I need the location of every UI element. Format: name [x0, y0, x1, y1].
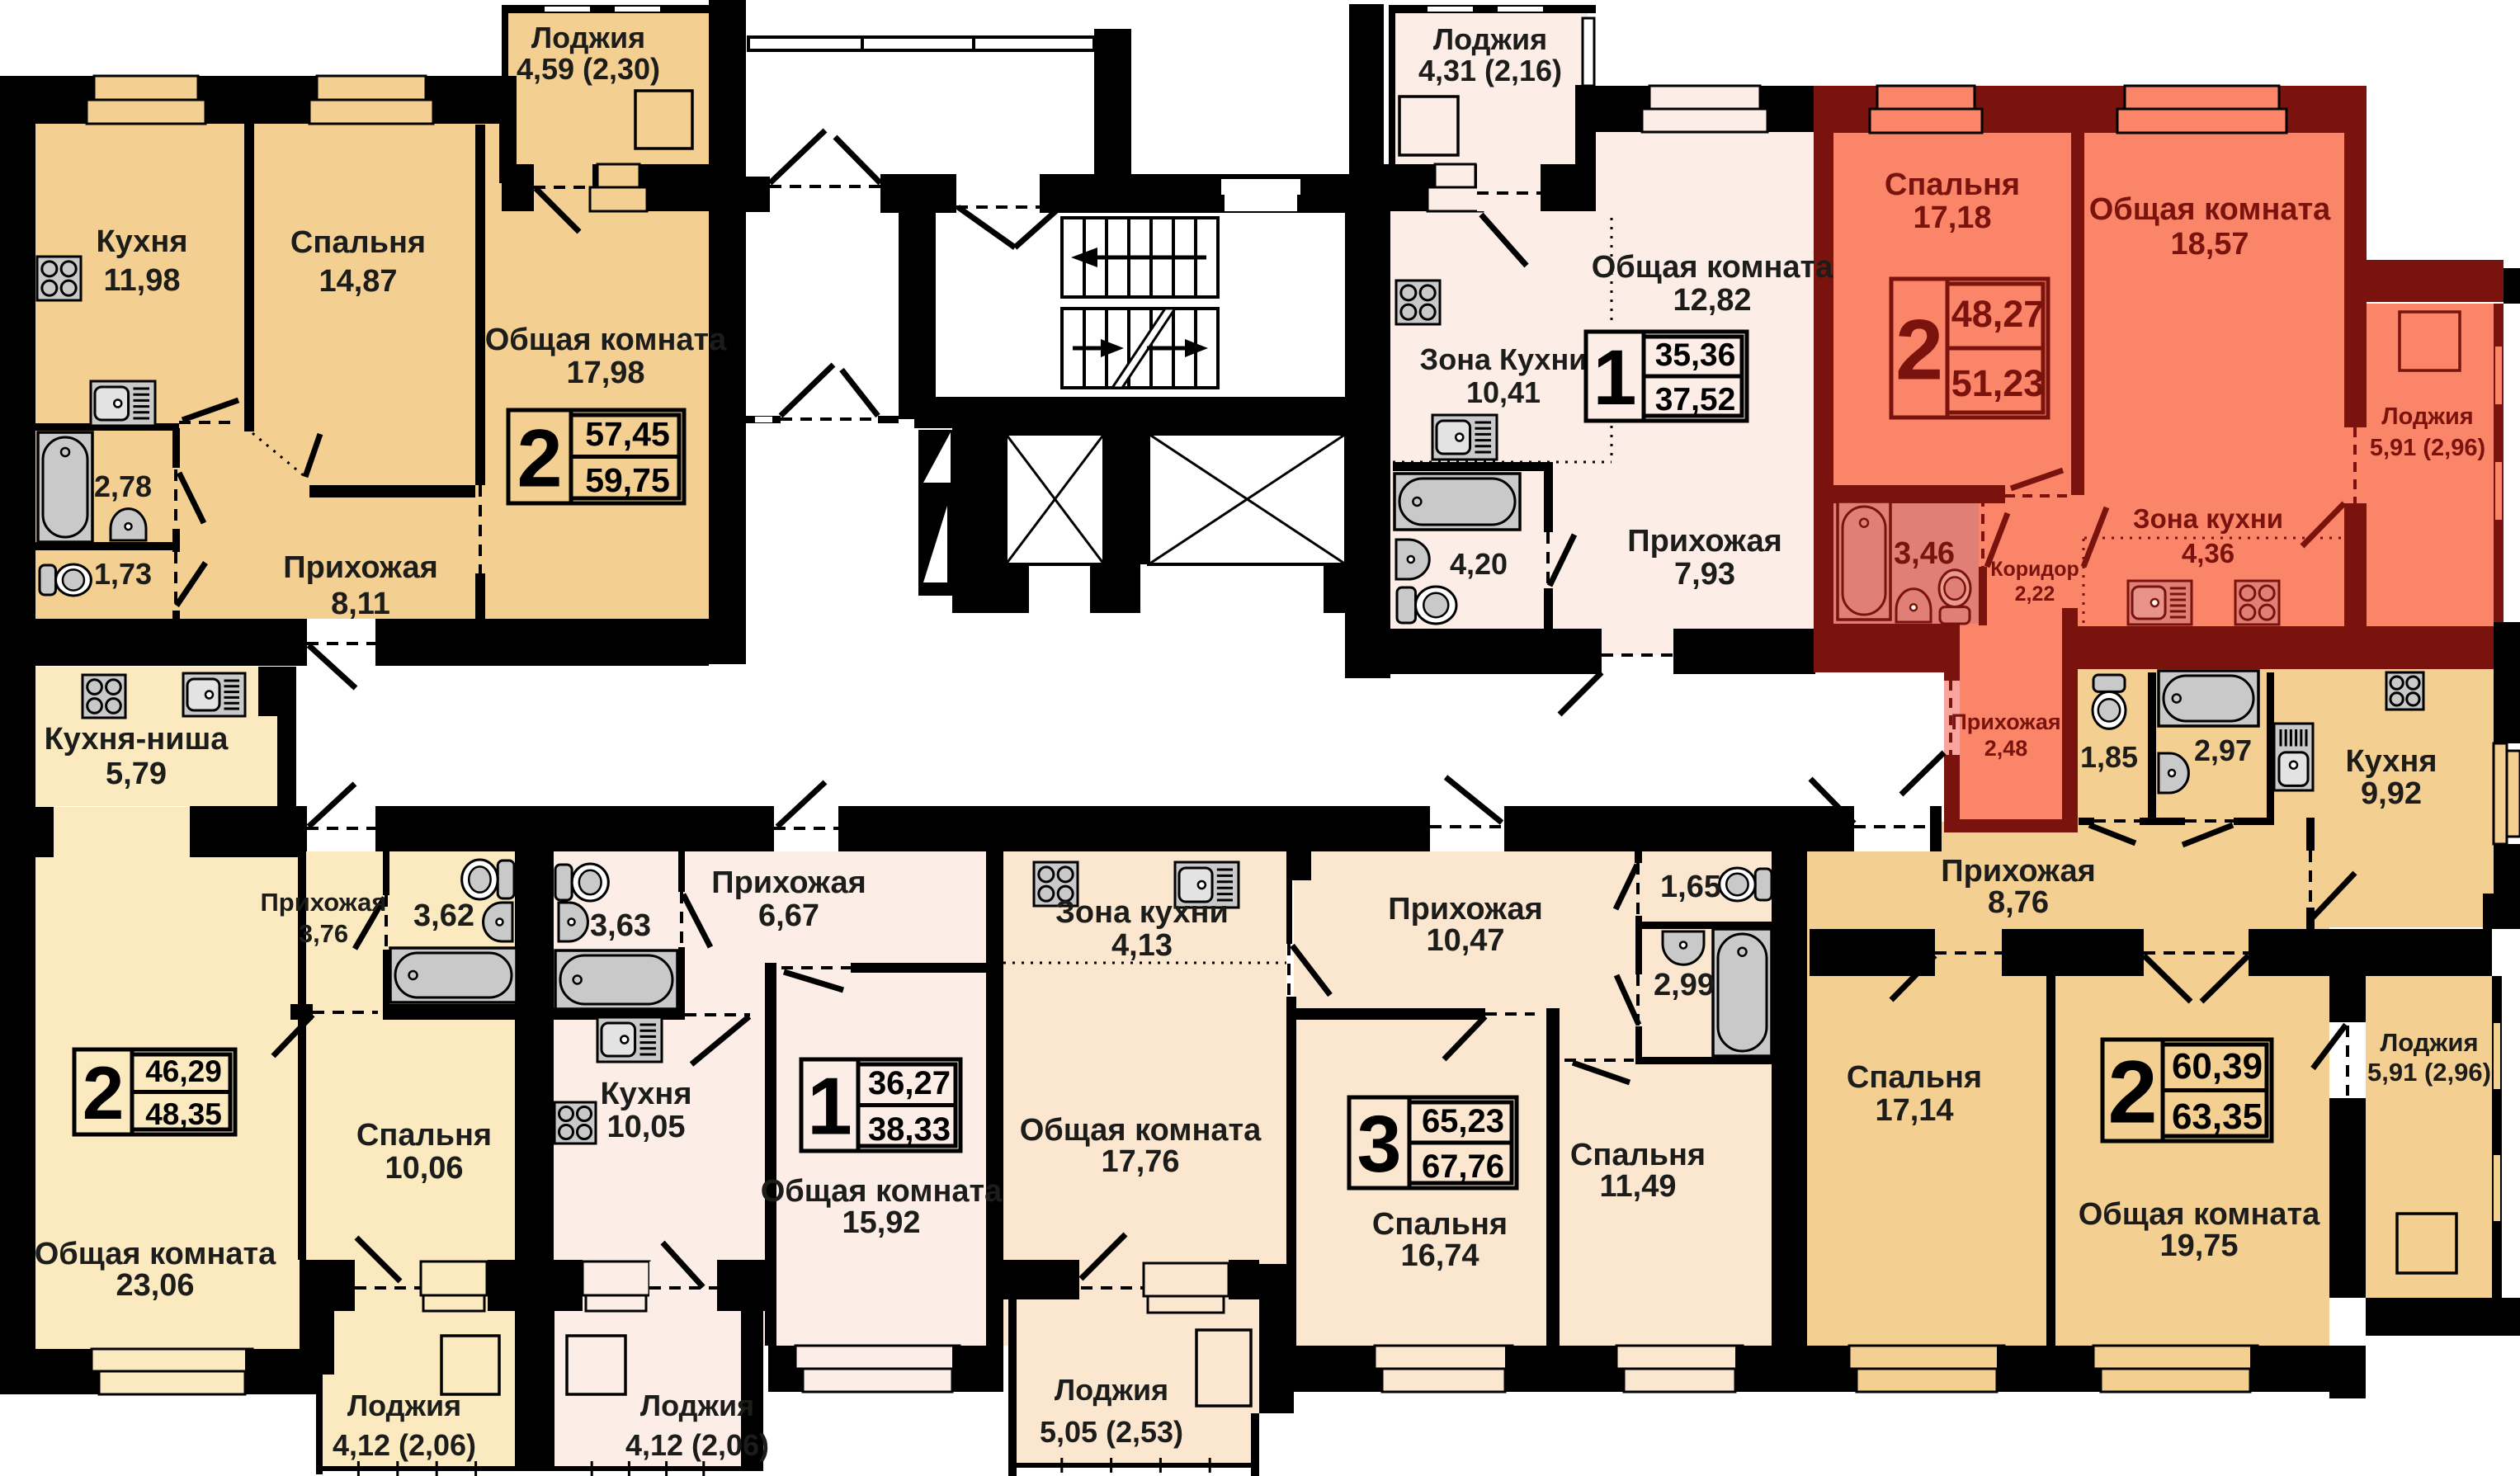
svg-text:1,65: 1,65 [1660, 870, 1721, 904]
svg-text:48,35: 48,35 [145, 1097, 222, 1131]
svg-text:4,20: 4,20 [1450, 547, 1508, 581]
svg-text:Спальня: Спальня [1372, 1207, 1508, 1242]
svg-text:Прихожая: Прихожая [711, 865, 866, 900]
svg-text:Лоджия: Лоджия [2380, 1028, 2478, 1057]
svg-text:4,12 (2,06): 4,12 (2,06) [333, 1428, 476, 1462]
svg-text:Кухня: Кухня [96, 224, 187, 259]
svg-text:65,23: 65,23 [1422, 1103, 1504, 1139]
svg-text:8,76: 8,76 [1988, 885, 2049, 920]
svg-text:5,91 (2,96): 5,91 (2,96) [2370, 435, 2485, 461]
svg-text:23,06: 23,06 [116, 1268, 194, 1303]
svg-text:46,29: 46,29 [145, 1054, 222, 1088]
svg-text:3: 3 [1357, 1099, 1402, 1189]
svg-text:Зона кухни: Зона кухни [2133, 503, 2283, 534]
svg-text:Спальня: Спальня [1847, 1060, 1982, 1095]
svg-text:Спальня: Спальня [290, 225, 426, 260]
svg-text:5,05 (2,53): 5,05 (2,53) [1040, 1415, 1183, 1449]
svg-text:17,18: 17,18 [1913, 200, 1991, 235]
svg-text:Прихожая: Прихожая [1388, 892, 1543, 927]
svg-text:Коридор: Коридор [1990, 558, 2079, 581]
svg-text:63,35: 63,35 [2172, 1096, 2263, 1137]
svg-text:3,76: 3,76 [299, 919, 348, 948]
svg-text:2: 2 [83, 1052, 125, 1135]
svg-text:Прихожая: Прихожая [1951, 710, 2060, 734]
svg-text:10,06: 10,06 [385, 1151, 463, 1186]
svg-text:1,73: 1,73 [94, 557, 152, 591]
svg-text:17,98: 17,98 [566, 356, 644, 390]
svg-text:Общая комната: Общая комната [761, 1174, 1003, 1209]
svg-text:9,92: 9,92 [2361, 776, 2422, 811]
svg-text:Зона кухни: Зона кухни [1055, 895, 1229, 930]
svg-text:2,22: 2,22 [2015, 582, 2055, 606]
svg-text:Кухня-ниша: Кухня-ниша [45, 722, 229, 757]
svg-text:2,48: 2,48 [1984, 736, 2028, 761]
svg-text:Спальня: Спальня [1885, 167, 2020, 202]
svg-text:60,39: 60,39 [2172, 1046, 2263, 1087]
svg-text:3,46: 3,46 [1894, 536, 1955, 571]
svg-text:1: 1 [807, 1061, 852, 1152]
svg-text:2,97: 2,97 [2194, 733, 2252, 767]
svg-text:Зона Кухни: Зона Кухни [1420, 342, 1588, 376]
svg-text:Спальня: Спальня [356, 1118, 492, 1153]
svg-text:Лоджия: Лоджия [347, 1389, 461, 1422]
svg-text:16,74: 16,74 [1400, 1238, 1479, 1273]
svg-text:17,14: 17,14 [1875, 1093, 1953, 1128]
svg-text:Лоджия: Лоджия [1055, 1373, 1168, 1407]
svg-text:3,62: 3,62 [413, 898, 474, 933]
svg-text:1,85: 1,85 [2080, 740, 2138, 774]
svg-text:10,41: 10,41 [1466, 375, 1541, 409]
svg-text:2,99: 2,99 [1654, 968, 1715, 1002]
svg-text:Общая комната: Общая комната [2089, 192, 2331, 227]
svg-text:19,75: 19,75 [2159, 1228, 2238, 1263]
svg-text:10,47: 10,47 [1426, 923, 1504, 958]
svg-text:Спальня: Спальня [1570, 1138, 1706, 1172]
svg-text:11,98: 11,98 [104, 263, 181, 298]
svg-text:14,87: 14,87 [319, 264, 397, 299]
svg-text:Прихожая: Прихожая [261, 888, 387, 917]
svg-text:12,82: 12,82 [1673, 283, 1751, 318]
svg-text:5,91 (2,96): 5,91 (2,96) [2367, 1058, 2491, 1087]
svg-text:2: 2 [517, 412, 562, 503]
svg-text:5,79: 5,79 [106, 757, 167, 791]
svg-text:48,27: 48,27 [1951, 293, 2045, 335]
svg-text:2: 2 [1895, 302, 1943, 398]
svg-text:51,23: 51,23 [1951, 362, 2045, 404]
svg-text:Прихожая: Прихожая [283, 550, 438, 585]
svg-text:6,67: 6,67 [758, 898, 819, 933]
svg-text:36,27: 36,27 [868, 1065, 951, 1101]
svg-text:11,49: 11,49 [1600, 1169, 1677, 1204]
svg-text:8,11: 8,11 [331, 587, 390, 621]
svg-text:Общая комната: Общая комната [485, 323, 727, 357]
svg-text:4,31 (2,16): 4,31 (2,16) [1418, 54, 1562, 87]
svg-text:Общая комната: Общая комната [1592, 250, 1833, 285]
svg-text:Общая комната: Общая комната [35, 1237, 276, 1271]
svg-text:Общая комната: Общая комната [1020, 1113, 1262, 1148]
svg-text:4,59 (2,30): 4,59 (2,30) [517, 52, 660, 86]
svg-text:Лоджия: Лоджия [1433, 22, 1547, 56]
svg-text:Кухня: Кухня [2345, 744, 2437, 779]
svg-text:37,52: 37,52 [1655, 382, 1736, 417]
svg-text:17,76: 17,76 [1101, 1144, 1179, 1179]
svg-text:15,92: 15,92 [842, 1205, 920, 1240]
svg-text:4,12 (2,06): 4,12 (2,06) [625, 1428, 769, 1462]
svg-text:Прихожая: Прихожая [1941, 854, 2096, 889]
svg-text:2: 2 [2107, 1041, 2157, 1141]
svg-text:10,05: 10,05 [606, 1110, 685, 1144]
svg-text:57,45: 57,45 [585, 415, 670, 453]
svg-text:67,76: 67,76 [1422, 1148, 1504, 1185]
svg-text:18,57: 18,57 [2170, 227, 2249, 262]
svg-text:1: 1 [1593, 334, 1637, 422]
svg-text:59,75: 59,75 [585, 461, 670, 499]
svg-text:Общая комната: Общая комната [2079, 1197, 2320, 1232]
svg-text:3,63: 3,63 [590, 908, 651, 943]
svg-text:38,33: 38,33 [868, 1111, 951, 1148]
svg-text:Лоджия: Лоджия [2381, 403, 2473, 430]
svg-text:7,93: 7,93 [1674, 557, 1735, 592]
svg-text:Кухня: Кухня [600, 1077, 691, 1111]
svg-text:4,36: 4,36 [2182, 538, 2234, 568]
svg-text:4,13: 4,13 [1111, 928, 1173, 963]
svg-text:Лоджия: Лоджия [531, 21, 645, 54]
svg-text:35,36: 35,36 [1655, 337, 1736, 373]
svg-text:Лоджия: Лоджия [640, 1389, 754, 1422]
svg-text:Прихожая: Прихожая [1627, 524, 1782, 559]
svg-text:2,78: 2,78 [94, 469, 152, 503]
